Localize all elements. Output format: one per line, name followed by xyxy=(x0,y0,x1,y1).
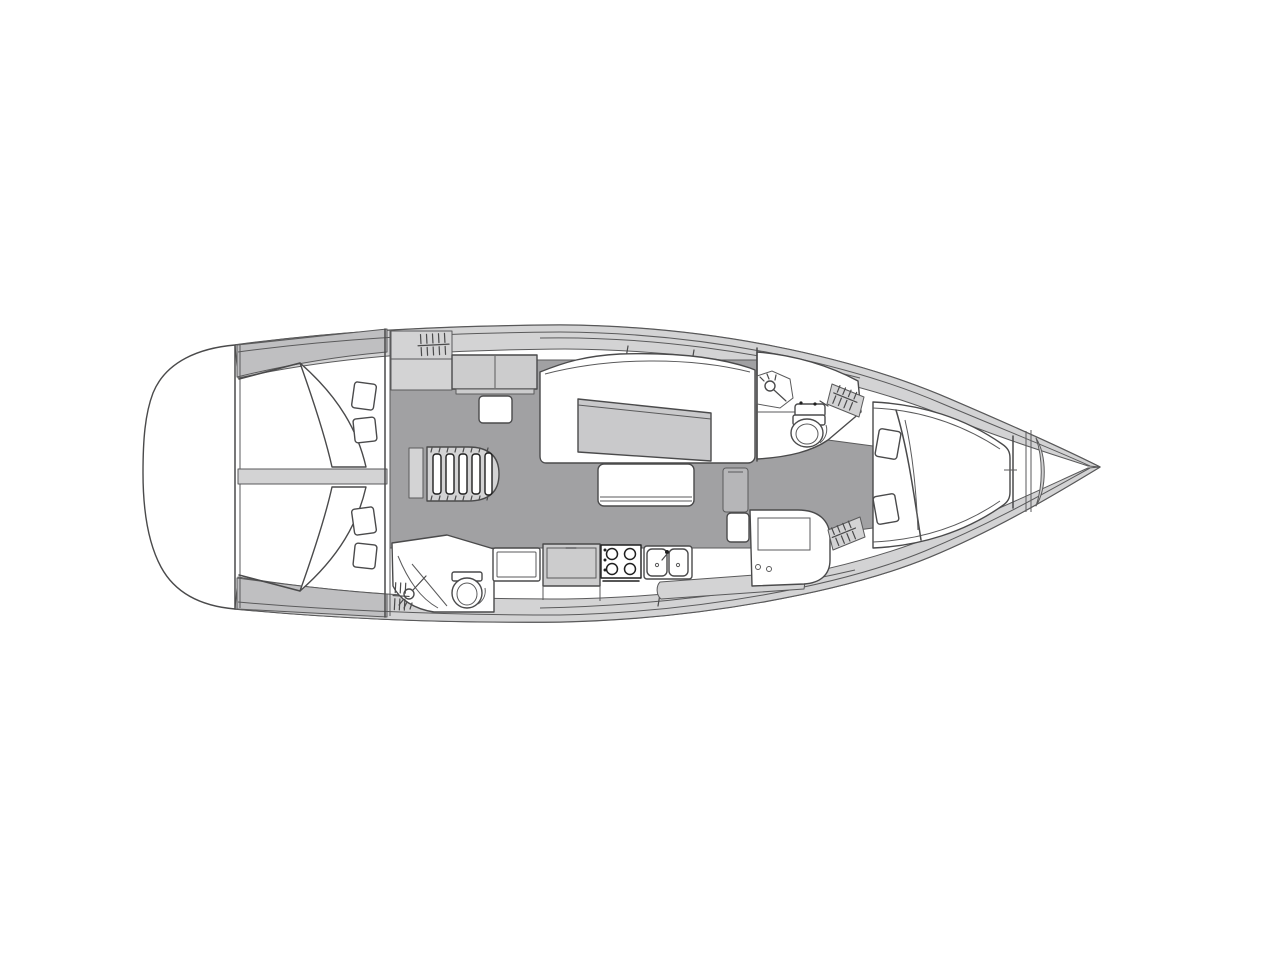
engine-panel xyxy=(409,448,423,498)
module-body xyxy=(750,510,830,586)
side-cabinet xyxy=(723,468,748,512)
module-small-locker xyxy=(727,513,749,542)
pillow xyxy=(873,493,900,524)
nav-seat xyxy=(479,396,512,423)
toilet xyxy=(791,415,827,447)
stove xyxy=(601,545,641,581)
aft-cabin-divider xyxy=(238,469,387,484)
pillow xyxy=(351,507,376,536)
cockpit-panel-lower xyxy=(391,359,452,390)
pillow xyxy=(351,382,376,411)
refrigerator xyxy=(493,548,540,581)
pillow xyxy=(875,428,902,459)
yacht-layout-diagram xyxy=(0,0,1280,960)
toilet xyxy=(452,572,485,608)
salon-bench xyxy=(598,464,694,506)
aft-head xyxy=(392,535,494,612)
pillow xyxy=(353,543,377,569)
galley-counter xyxy=(543,544,600,586)
yacht-layout-canvas xyxy=(0,0,1280,960)
pillow xyxy=(353,417,377,443)
double-sink xyxy=(644,546,692,579)
nav-cabinet-base xyxy=(456,389,534,394)
